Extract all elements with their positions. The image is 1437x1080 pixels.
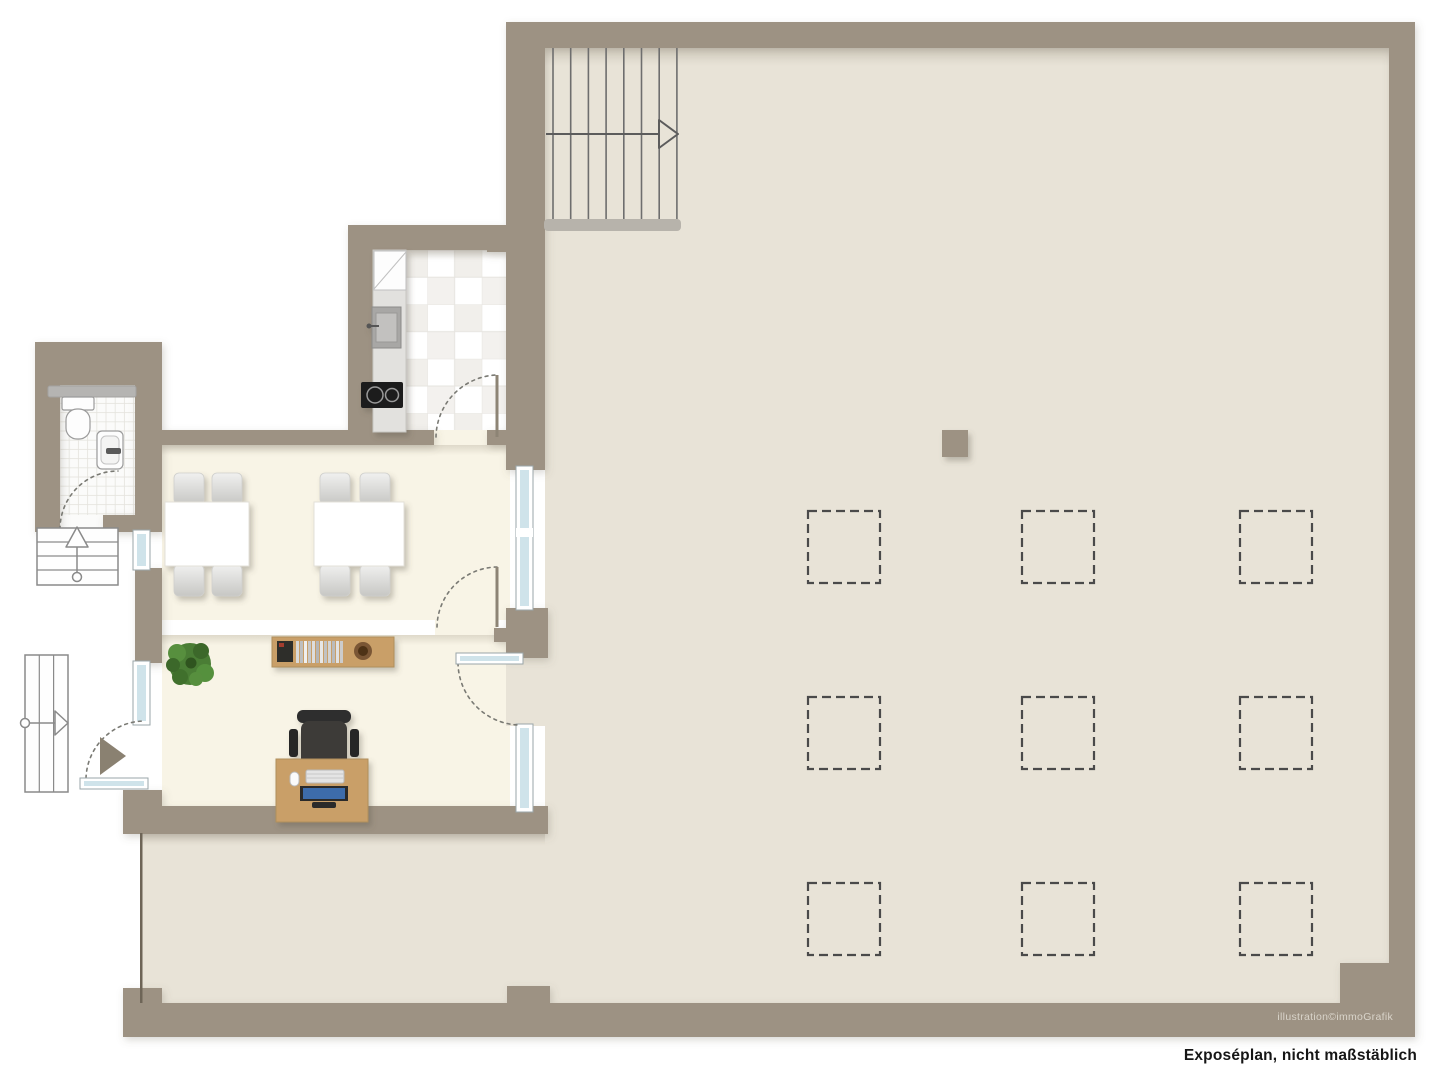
plant xyxy=(166,643,214,686)
mouse xyxy=(290,772,299,786)
wall-segment xyxy=(348,225,373,443)
shower-tray xyxy=(48,386,136,397)
disclaimer-text: Exposéplan, nicht maßstäblich xyxy=(1184,1047,1417,1065)
chair xyxy=(360,565,390,596)
chair xyxy=(360,473,390,504)
wall-shade xyxy=(162,445,510,455)
chair xyxy=(212,473,242,504)
window-office-left xyxy=(133,661,150,725)
door-leaf-entrance xyxy=(80,778,148,789)
wall-segment xyxy=(135,568,162,663)
sideboard xyxy=(272,637,394,667)
staircase-main-entry xyxy=(21,655,69,792)
wall-segment xyxy=(494,628,508,642)
wall-segment xyxy=(135,342,162,532)
refrigerator xyxy=(374,251,406,290)
wall-segment xyxy=(507,986,550,1006)
door-leaf-office-hall xyxy=(456,653,523,664)
pillar xyxy=(942,430,968,457)
wall-segment xyxy=(506,22,545,470)
wall-shade xyxy=(142,833,545,845)
keyboard xyxy=(306,770,344,783)
wall-segment xyxy=(1389,22,1415,970)
dining-table xyxy=(314,502,404,566)
wall-shade xyxy=(545,48,1389,66)
floors xyxy=(58,48,1389,1003)
chair xyxy=(212,565,242,596)
stair-landing xyxy=(544,219,681,231)
terrace-edge-line xyxy=(140,833,143,1003)
wall-segment xyxy=(506,608,548,658)
toilet xyxy=(62,397,94,439)
washbasin xyxy=(97,431,123,469)
chair xyxy=(174,473,204,504)
wall-segment xyxy=(487,232,510,252)
chair xyxy=(320,565,350,596)
chair xyxy=(174,565,204,596)
window-dining-right xyxy=(516,466,533,610)
dining-table xyxy=(165,502,249,566)
kitchen-sink xyxy=(367,307,402,348)
desk xyxy=(276,759,368,822)
chair xyxy=(320,473,350,504)
window-office-right xyxy=(516,724,533,812)
door-gap xyxy=(506,658,545,726)
stair-start-circle xyxy=(73,573,82,582)
wall-segment xyxy=(35,342,60,530)
door-leaf-dining-office xyxy=(496,567,499,627)
stair-start-circle xyxy=(21,719,30,728)
door-gap xyxy=(435,620,497,635)
staircase-side-entry xyxy=(37,527,118,585)
wall-segment xyxy=(123,790,162,808)
cooktop xyxy=(361,382,403,408)
door-leaf-kitchen xyxy=(496,375,499,437)
wall-segment xyxy=(123,1003,1415,1037)
wall-segment xyxy=(510,22,1415,48)
floor-plan xyxy=(0,0,1437,1080)
watermark-text: illustration©immoGrafik xyxy=(1277,1011,1393,1023)
faucet xyxy=(106,448,121,454)
window-dining-left xyxy=(133,530,150,570)
entrance-arrow xyxy=(100,737,126,775)
